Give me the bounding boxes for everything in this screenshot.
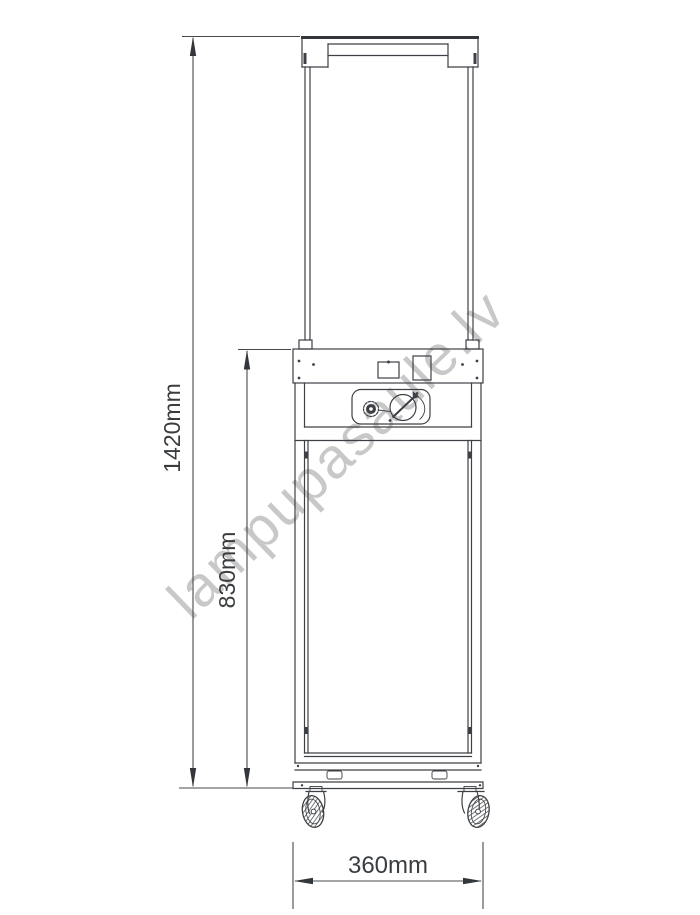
watermark-text: lampupasaule.lv [156, 278, 518, 631]
wheel-hub-right [476, 809, 481, 814]
arrow-down-icon [244, 768, 250, 788]
arrow-up-icon [244, 350, 250, 370]
caster-left [300, 787, 326, 830]
arrow-right-icon [463, 878, 482, 884]
hinge-bottom-left [305, 727, 308, 734]
patio-heater-dimension-drawing: lampupasaule.lv [0, 0, 700, 915]
post-foot-left [299, 340, 312, 349]
base-tab-left [327, 771, 342, 779]
base-tab-right [432, 771, 447, 779]
base [293, 763, 483, 789]
top-cap [301, 38, 479, 68]
wheel-hub-left [311, 809, 316, 814]
knob-min-mark [389, 419, 392, 422]
arrow-left-icon [294, 878, 313, 884]
control-housing [295, 383, 481, 763]
body-height-label: 830mm [214, 532, 240, 609]
arrow-down-icon [190, 768, 196, 788]
glass-panel-top-right [474, 53, 477, 64]
glass-panel-top-left [304, 53, 307, 64]
caster-right [458, 787, 492, 830]
base-plate [293, 782, 483, 789]
carry-handle [328, 44, 448, 56]
hinge-bottom-right [469, 727, 472, 734]
technical-drawing-canvas: lampupasaule.lv [0, 0, 700, 915]
width-label: 360mm [348, 852, 428, 879]
overall-height-label: 1420mm [159, 383, 185, 472]
arrow-up-icon [190, 37, 196, 57]
glass-post-left [305, 67, 310, 340]
dimension-overall-height: 1420mm [159, 37, 300, 789]
hinge-top-left [305, 452, 308, 459]
hinge-top-right [469, 452, 472, 459]
dimension-width: 360mm [293, 842, 483, 909]
